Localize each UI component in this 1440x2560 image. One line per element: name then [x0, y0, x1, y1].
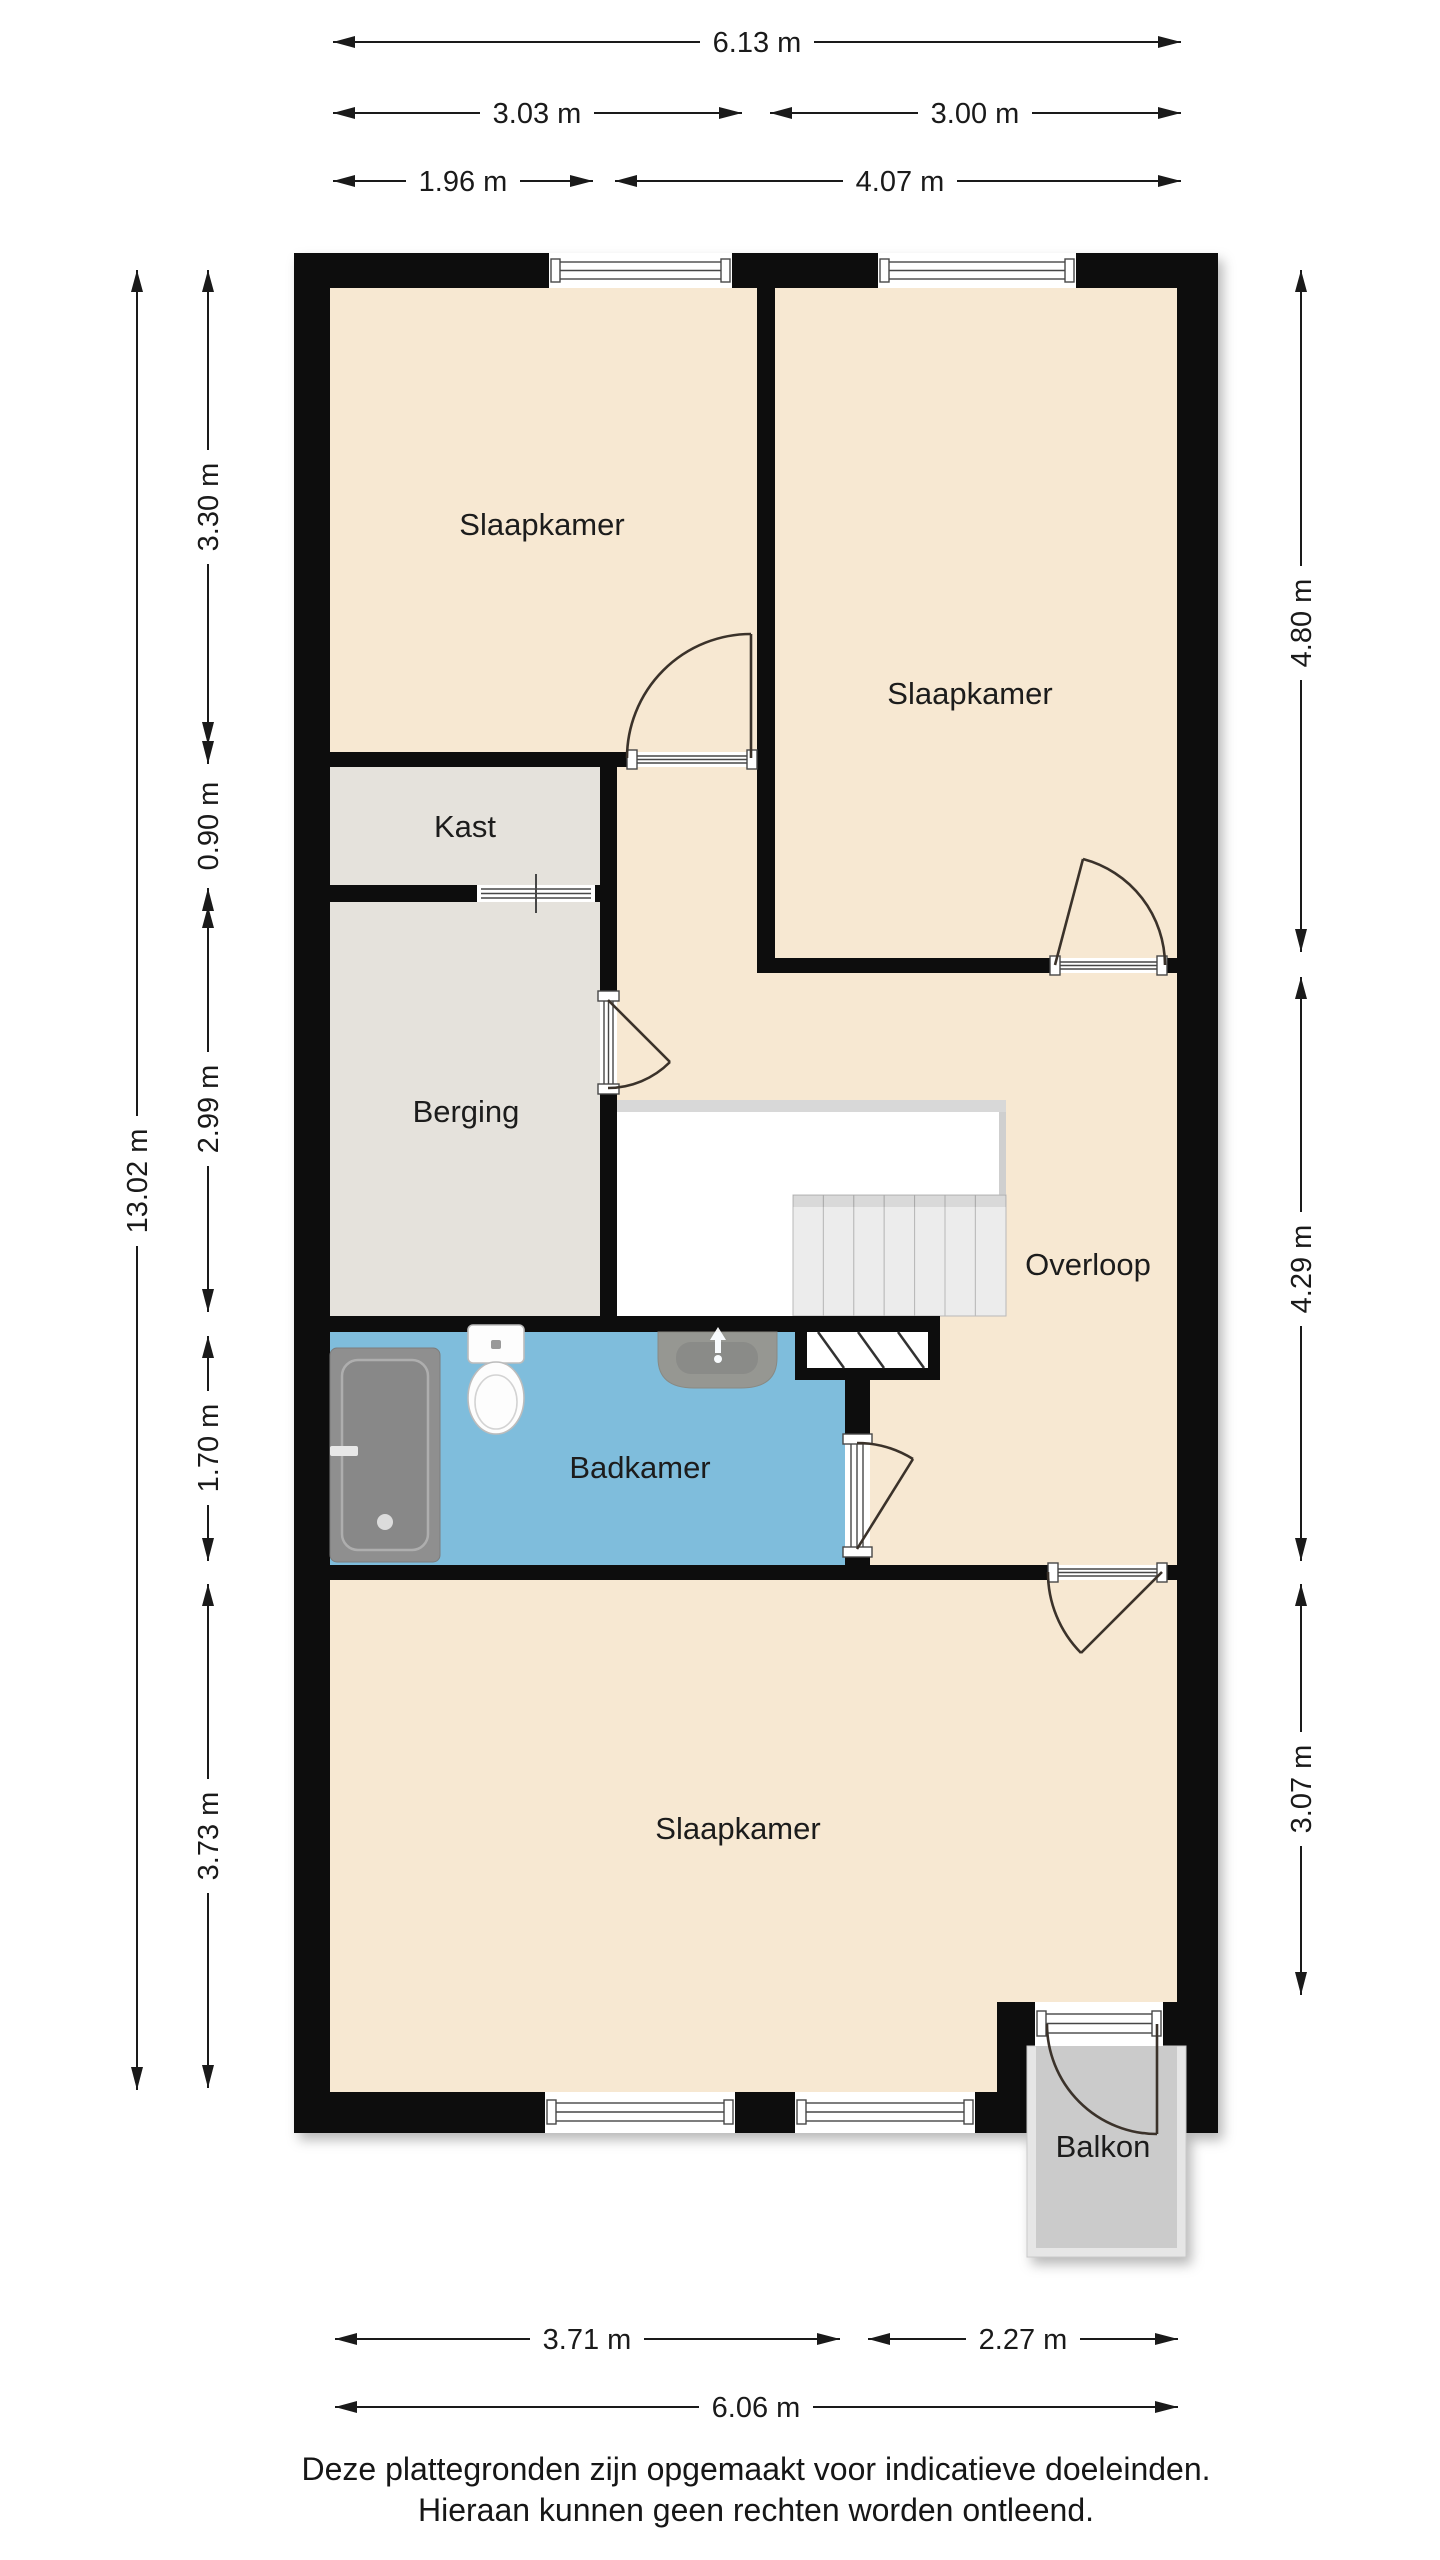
sink	[658, 1327, 777, 1388]
svg-text:3.07 m: 3.07 m	[1286, 1745, 1318, 1834]
dimension-bottom-total: 6.06 m	[335, 2390, 1178, 2424]
svg-text:1.70 m: 1.70 m	[193, 1404, 225, 1493]
floorplan-svg: Slaapkamer Slaapkamer Kast Berging Overl…	[0, 0, 1440, 2560]
svg-text:3.03 m: 3.03 m	[493, 98, 582, 130]
room-label-storage: Berging	[413, 1094, 520, 1129]
room-label-closet: Kast	[434, 809, 496, 844]
room-label-bedroom-top-left: Slaapkamer	[459, 507, 624, 542]
toilet	[468, 1325, 524, 1434]
floorplan-page: Slaapkamer Slaapkamer Kast Berging Overl…	[0, 0, 1440, 2560]
dimension-bottom-left: 3.71 m	[335, 2322, 840, 2356]
disclaimer-line-1: Deze plattegronden zijn opgemaakt voor i…	[301, 2451, 1210, 2487]
window-symbol-top-left	[549, 253, 732, 288]
window-symbol-top-right	[878, 253, 1076, 288]
room-label-balcony: Balkon	[1056, 2129, 1151, 2164]
disclaimer-line-2: Hieraan kunnen geen rechten worden ontle…	[418, 2492, 1094, 2528]
svg-text:2.99 m: 2.99 m	[193, 1065, 225, 1154]
dimension-left-seg1: 3.30 m	[191, 270, 225, 745]
dimension-right-seg3: 3.07 m	[1284, 1584, 1318, 1995]
room-label-bathroom: Badkamer	[569, 1450, 710, 1485]
dimension-left-seg2: 0.90 m	[193, 735, 225, 917]
dimension-left-total: 13.02 m	[120, 270, 154, 2090]
bathtub	[330, 1348, 440, 1562]
dimension-top-right: 3.00 m	[770, 96, 1181, 130]
floorplan: Slaapkamer Slaapkamer Kast Berging Overl…	[294, 253, 1218, 2257]
dimension-top-total: 6.13 m	[333, 25, 1181, 59]
svg-text:13.02 m: 13.02 m	[122, 1129, 154, 1234]
svg-text:3.71 m: 3.71 m	[543, 2324, 632, 2356]
svg-text:6.06 m: 6.06 m	[712, 2392, 801, 2424]
room-label-bedroom-top-right: Slaapkamer	[887, 676, 1052, 711]
svg-text:0.90 m: 0.90 m	[193, 782, 225, 871]
dimension-right-seg1: 4.80 m	[1284, 270, 1318, 952]
dimension-bottom-right: 2.27 m	[868, 2322, 1178, 2356]
dimension-right-seg2: 4.29 m	[1284, 977, 1318, 1561]
svg-text:4.07 m: 4.07 m	[856, 166, 945, 198]
shaft-hatch	[795, 1316, 940, 1380]
svg-text:3.73 m: 3.73 m	[193, 1792, 225, 1881]
dimension-top-inner-left: 1.96 m	[333, 164, 593, 198]
dimension-left-seg5: 3.73 m	[191, 1584, 225, 2088]
svg-text:1.96 m: 1.96 m	[419, 166, 508, 198]
svg-text:4.80 m: 4.80 m	[1286, 579, 1318, 668]
dimension-left-seg4: 1.70 m	[191, 1336, 225, 1561]
window-symbol-bottom-right	[795, 2092, 975, 2133]
svg-text:2.27 m: 2.27 m	[979, 2324, 1068, 2356]
dimension-left-seg3: 2.99 m	[191, 906, 225, 1312]
dimension-top-inner-right: 4.07 m	[615, 164, 1181, 198]
svg-text:6.13 m: 6.13 m	[713, 27, 802, 59]
svg-text:3.00 m: 3.00 m	[931, 98, 1020, 130]
room-label-bedroom-bottom: Slaapkamer	[655, 1811, 820, 1846]
window-symbol-bottom-left	[545, 2092, 735, 2133]
dimension-top-left: 3.03 m	[333, 96, 742, 130]
room-label-landing: Overloop	[1025, 1247, 1151, 1282]
svg-text:3.30 m: 3.30 m	[193, 463, 225, 552]
svg-text:4.29 m: 4.29 m	[1286, 1225, 1318, 1314]
